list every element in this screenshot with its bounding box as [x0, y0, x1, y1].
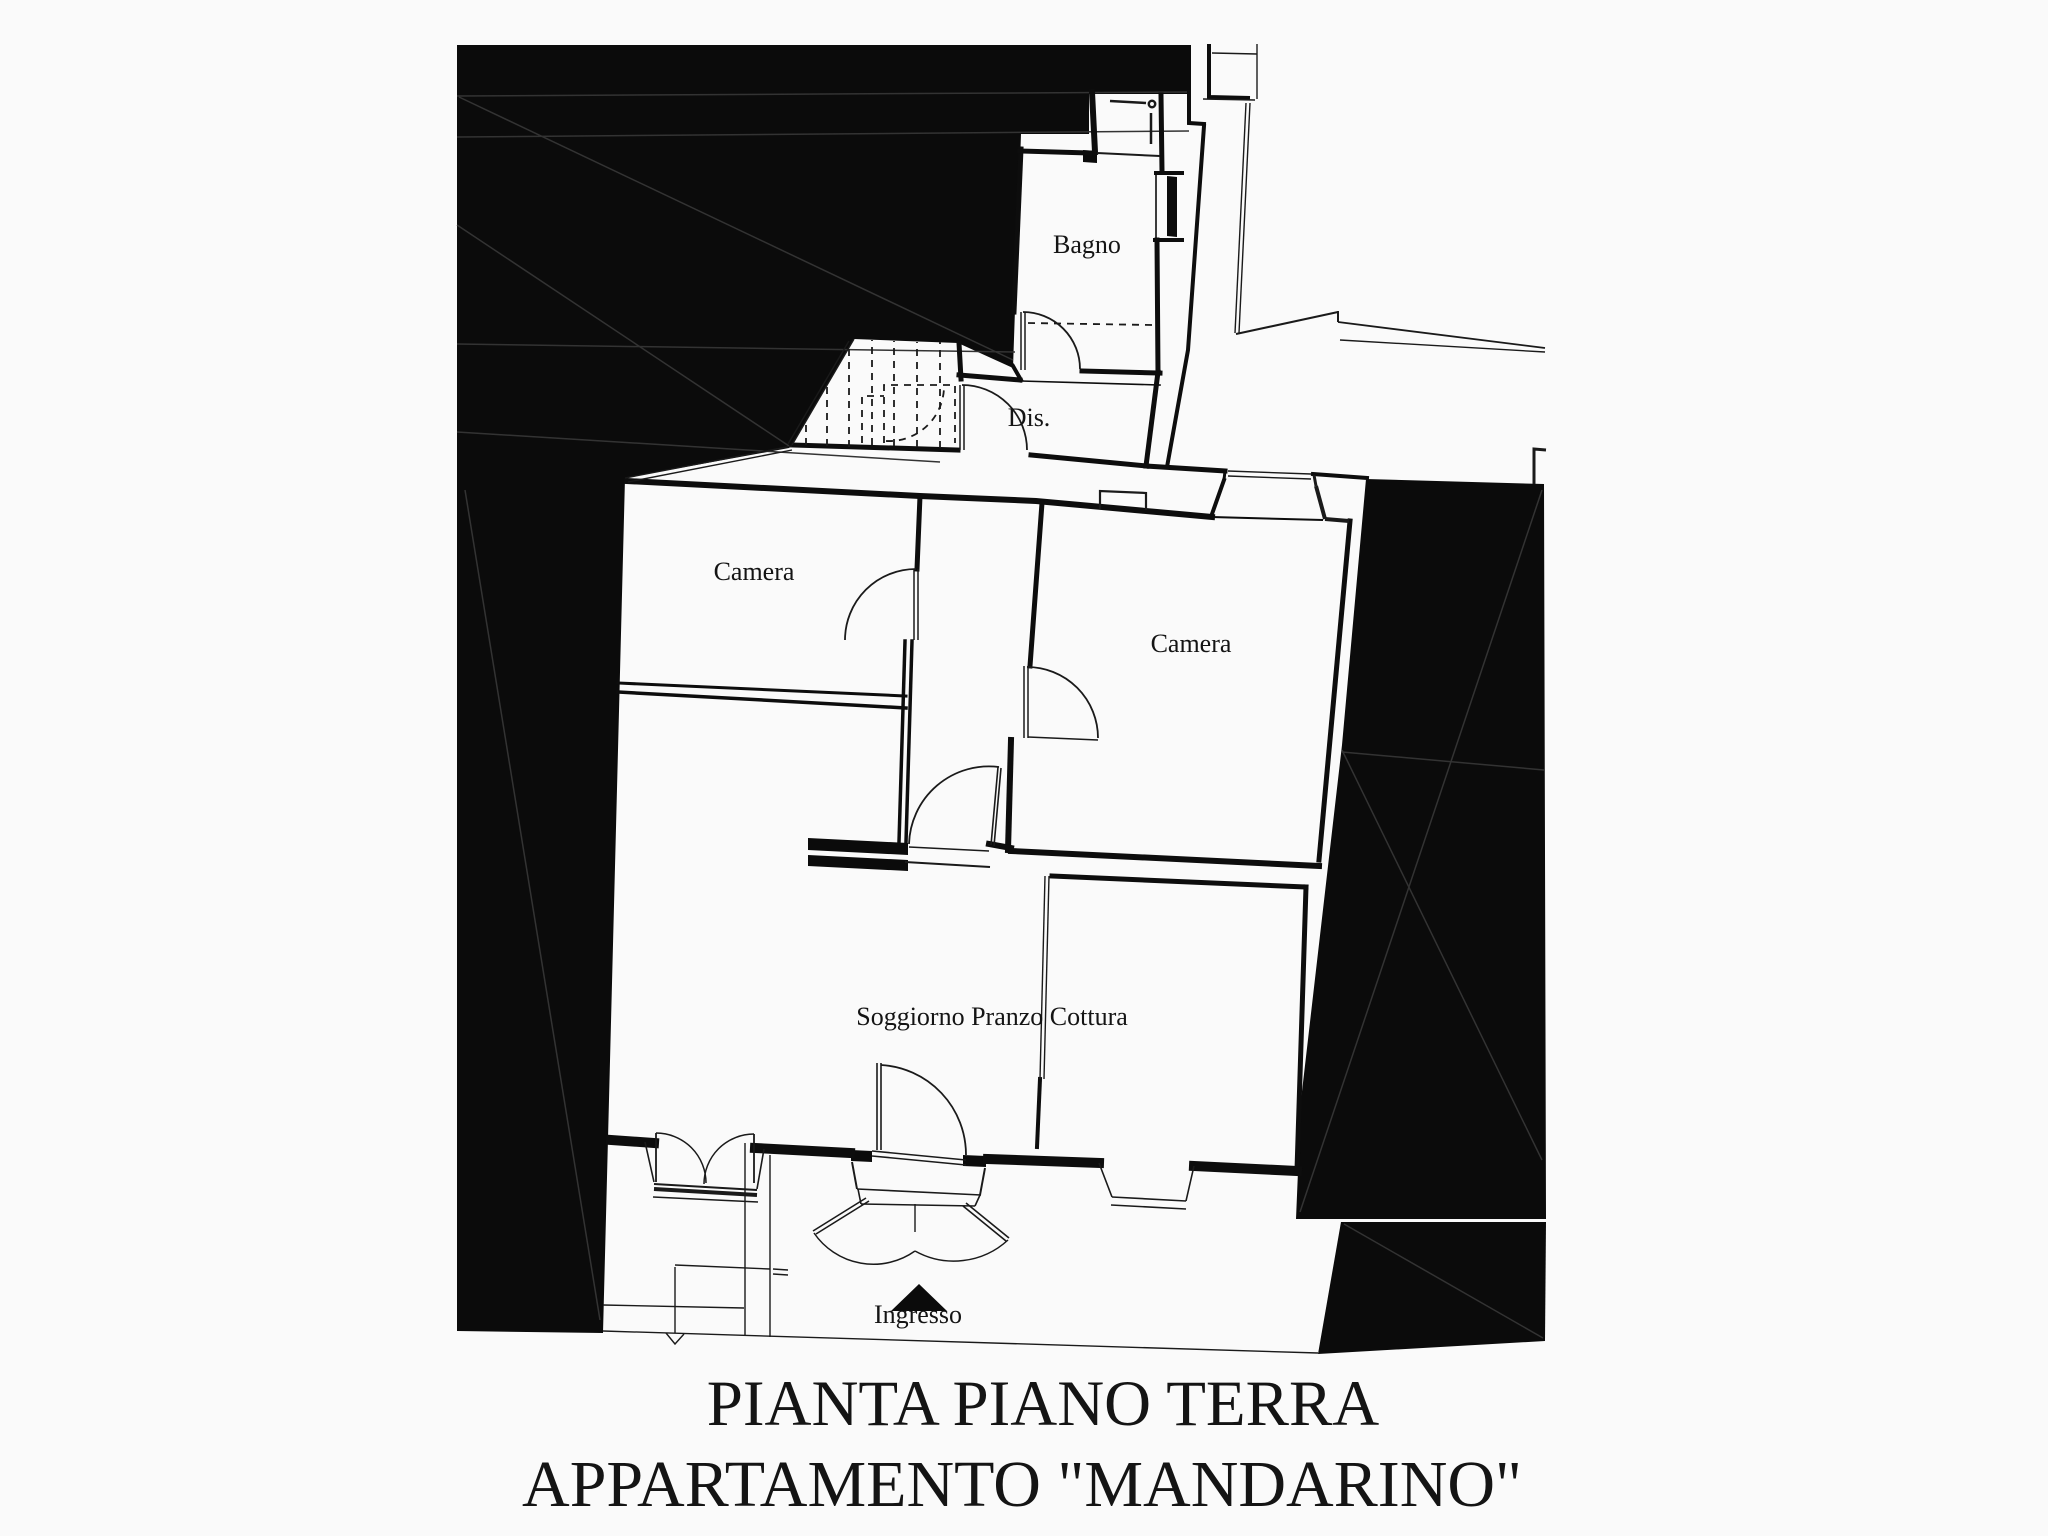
svg-text:Ingresso: Ingresso	[874, 1300, 962, 1329]
svg-text:PIANTA PIANO TERRA: PIANTA PIANO TERRA	[707, 1368, 1380, 1440]
svg-text:Dis.: Dis.	[1008, 403, 1051, 432]
svg-text:Camera: Camera	[714, 557, 795, 586]
svg-text:Bagno: Bagno	[1053, 230, 1121, 259]
svg-text:APPARTAMENTO "MANDARINO": APPARTAMENTO "MANDARINO"	[522, 1448, 1522, 1521]
svg-text:Soggiorno Pranzo Cottura: Soggiorno Pranzo Cottura	[856, 1002, 1128, 1031]
svg-text:Camera: Camera	[1151, 629, 1232, 658]
